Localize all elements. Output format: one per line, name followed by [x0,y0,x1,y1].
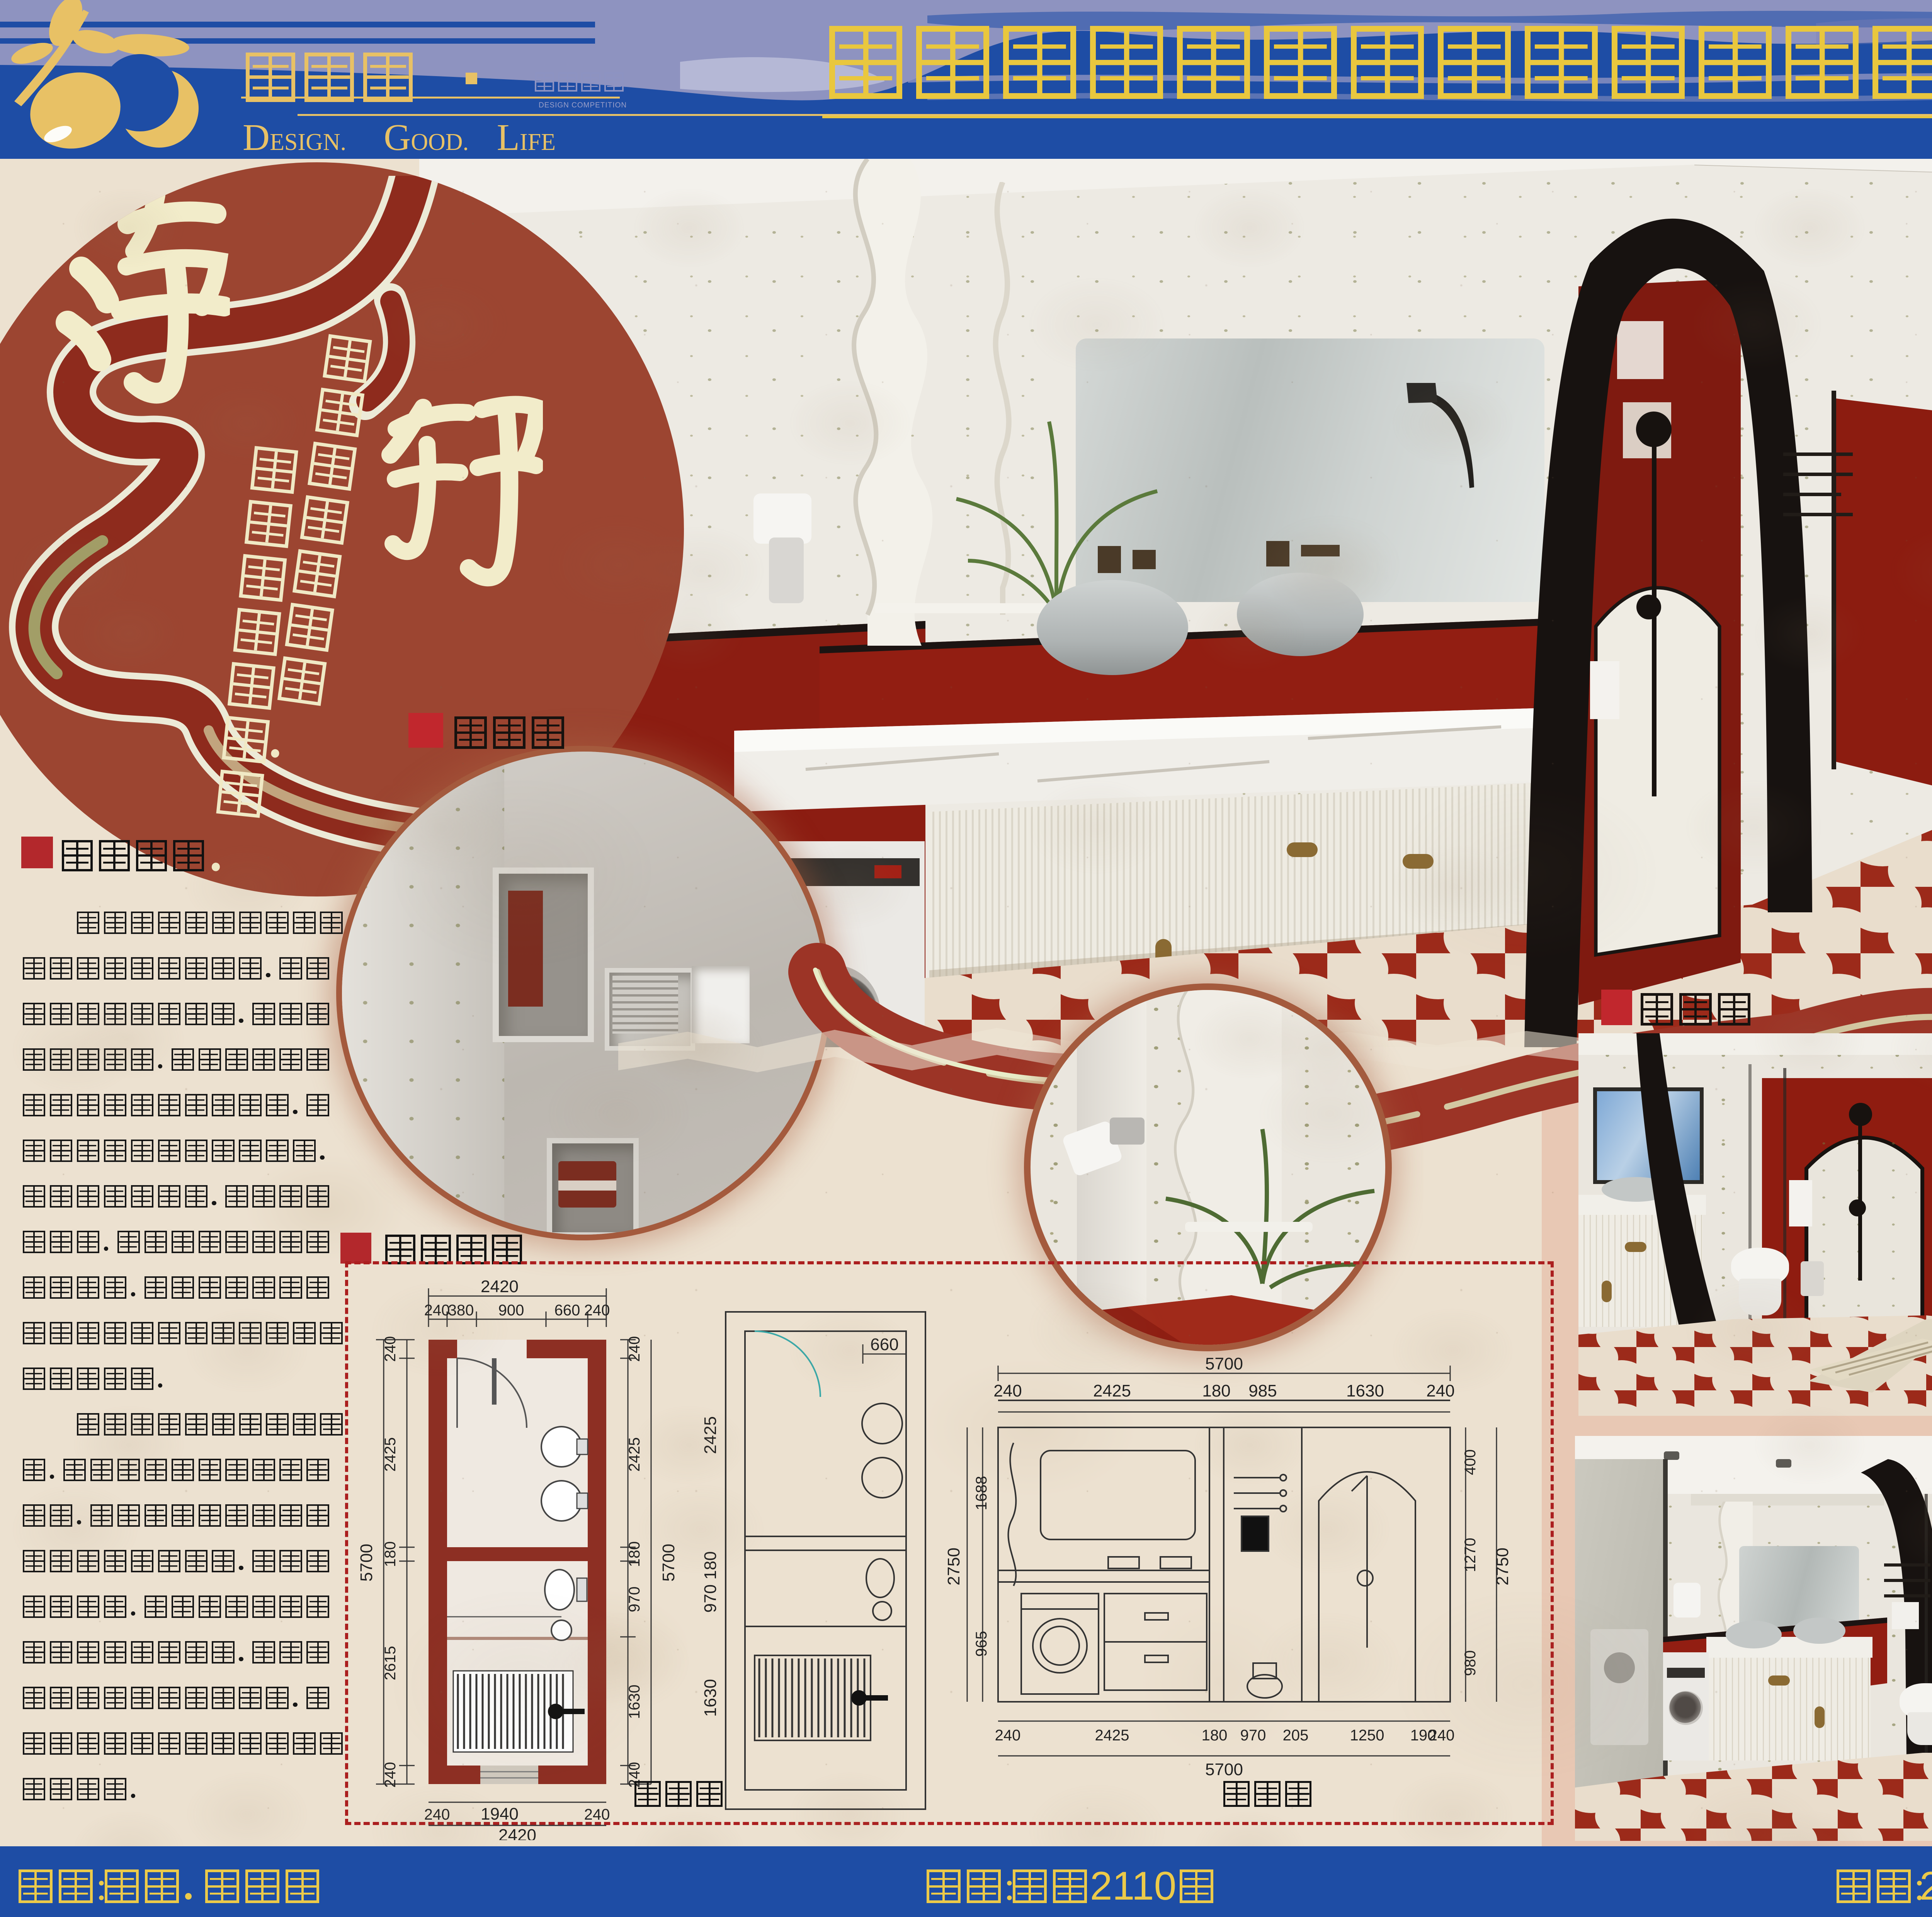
svg-text:970: 970 [1240,1727,1266,1744]
svg-text:985: 985 [1248,1381,1277,1400]
svg-text:2750: 2750 [944,1548,963,1585]
svg-text:2750: 2750 [1493,1548,1512,1585]
svg-text:1270: 1270 [1462,1538,1479,1572]
svg-text:240: 240 [382,1336,399,1362]
svg-text:240: 240 [995,1727,1021,1744]
svg-text:900: 900 [498,1302,524,1319]
svg-text:240: 240 [424,1302,450,1319]
svg-text:1250: 1250 [1350,1727,1384,1744]
svg-text:205: 205 [1283,1727,1309,1744]
svg-text:2615: 2615 [382,1646,399,1681]
svg-text:2425: 2425 [701,1416,720,1454]
svg-text:970: 970 [626,1587,643,1613]
svg-text:180: 180 [1202,1727,1228,1744]
svg-text:240: 240 [626,1336,643,1362]
svg-text:1630: 1630 [1346,1381,1384,1400]
svg-text:5700: 5700 [357,1544,376,1582]
svg-text:970 180: 970 180 [701,1551,720,1613]
svg-text:980: 980 [1462,1650,1479,1676]
svg-text:1940: 1940 [481,1805,519,1823]
svg-text:5700: 5700 [1205,1354,1243,1373]
svg-text:660: 660 [554,1302,580,1319]
svg-text:5700: 5700 [659,1544,678,1582]
svg-text:380: 380 [448,1302,474,1319]
svg-text:180: 180 [1202,1381,1230,1400]
svg-text:240: 240 [382,1762,399,1788]
svg-text:1630: 1630 [626,1685,643,1719]
svg-text:240: 240 [993,1381,1022,1400]
svg-text:400: 400 [1462,1449,1479,1475]
svg-text:240: 240 [1429,1727,1455,1744]
svg-text:965: 965 [973,1631,990,1657]
svg-text:240: 240 [584,1302,610,1319]
svg-text:2420: 2420 [498,1826,536,1840]
svg-text:2425: 2425 [1095,1727,1129,1744]
svg-text:2425: 2425 [1093,1381,1131,1400]
svg-text:180: 180 [382,1541,399,1567]
svg-text:2425: 2425 [626,1437,643,1472]
svg-text:180: 180 [626,1541,643,1567]
svg-text:5700: 5700 [1205,1760,1243,1779]
svg-text:240: 240 [424,1806,450,1823]
svg-text:660: 660 [870,1335,898,1354]
svg-text:2420: 2420 [481,1277,519,1296]
svg-text:2425: 2425 [382,1437,399,1472]
svg-text:240: 240 [584,1806,610,1823]
svg-text:1688: 1688 [973,1476,990,1510]
svg-text:240: 240 [1426,1381,1454,1400]
svg-text:1630: 1630 [701,1679,720,1717]
